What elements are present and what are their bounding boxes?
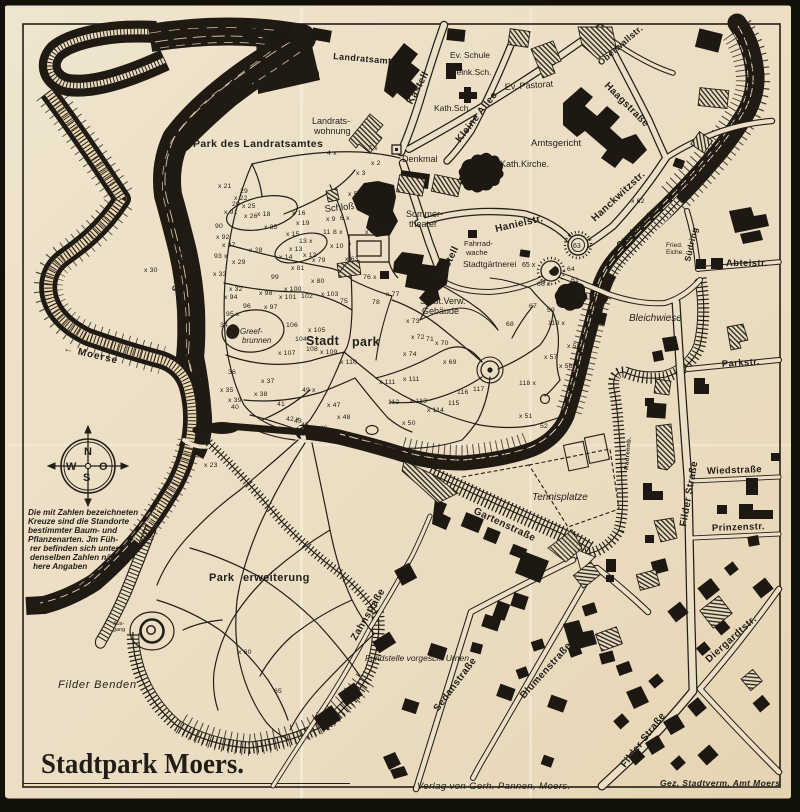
svg-text:Eiche.: Eiche. bbox=[666, 249, 684, 256]
svg-text:x 35: x 35 bbox=[220, 387, 234, 394]
svg-text:gang: gang bbox=[113, 627, 125, 633]
svg-text:Filder Benden: Filder Benden bbox=[58, 679, 137, 691]
svg-text:x 98: x 98 bbox=[259, 290, 273, 297]
svg-text:Denkmal: Denkmal bbox=[402, 154, 438, 164]
svg-text:49 x: 49 x bbox=[302, 387, 316, 394]
svg-text:8 x: 8 x bbox=[333, 229, 343, 236]
svg-text:76 x: 76 x bbox=[363, 274, 377, 281]
svg-text:x 74: x 74 bbox=[403, 351, 417, 358]
svg-text:x 91: x 91 bbox=[224, 209, 238, 216]
svg-text:59: 59 bbox=[547, 307, 555, 314]
svg-text:x 39: x 39 bbox=[228, 397, 242, 404]
svg-text:66 x: 66 x bbox=[537, 281, 551, 288]
svg-text:11: 11 bbox=[323, 229, 330, 236]
svg-text:Die mit Zahlen bezeichneten: Die mit Zahlen bezeichneten bbox=[28, 508, 138, 517]
svg-text:Stadt.Verw.: Stadt.Verw. bbox=[420, 296, 466, 306]
svg-text:N: N bbox=[84, 446, 92, 458]
svg-text:x 13: x 13 bbox=[289, 246, 303, 253]
svg-text:29: 29 bbox=[240, 188, 248, 195]
svg-text:Kath.Kirche.: Kath.Kirche. bbox=[500, 159, 549, 169]
svg-text:104: 104 bbox=[295, 336, 307, 343]
svg-text:bestimmter Baum- und: bestimmter Baum- und bbox=[28, 526, 118, 535]
svg-text:78: 78 bbox=[372, 299, 380, 306]
svg-text:71: 71 bbox=[426, 336, 434, 343]
svg-text:x 19: x 19 bbox=[296, 220, 310, 227]
svg-text:x 69: x 69 bbox=[443, 359, 457, 366]
svg-text:x 10: x 10 bbox=[330, 243, 344, 250]
svg-text:20: 20 bbox=[232, 201, 240, 208]
svg-text:112: 112 bbox=[388, 399, 399, 406]
svg-text:x 50: x 50 bbox=[402, 420, 416, 427]
svg-text:x 46: x 46 bbox=[314, 425, 328, 432]
svg-text:106: 106 bbox=[286, 322, 298, 329]
svg-text:119 x: 119 x bbox=[548, 320, 566, 327]
svg-text:x 16: x 16 bbox=[292, 210, 306, 217]
svg-text:95 x: 95 x bbox=[226, 311, 240, 318]
svg-text:Ev. Schule: Ev. Schule bbox=[450, 50, 490, 60]
svg-text:Tennisplatze: Tennisplatze bbox=[532, 492, 588, 503]
svg-text:x 30: x 30 bbox=[144, 267, 158, 274]
svg-text:x 37: x 37 bbox=[261, 378, 275, 385]
svg-text:wohnung: wohnung bbox=[313, 126, 351, 136]
svg-text:x 103: x 103 bbox=[321, 291, 339, 298]
svg-text:Kath.Sch.: Kath.Sch. bbox=[434, 103, 471, 113]
svg-text:x 2: x 2 bbox=[371, 160, 381, 167]
svg-text:67: 67 bbox=[529, 303, 537, 310]
svg-text:x 81: x 81 bbox=[291, 265, 305, 272]
svg-text:x 72: x 72 bbox=[411, 334, 425, 341]
svg-text:75: 75 bbox=[340, 298, 348, 305]
svg-text:x 79: x 79 bbox=[312, 257, 326, 264]
svg-text:x 60: x 60 bbox=[238, 649, 252, 656]
svg-text:x 55: x 55 bbox=[566, 386, 580, 393]
svg-text:theater: theater bbox=[409, 219, 437, 229]
svg-text:W: W bbox=[66, 461, 77, 473]
svg-text:68: 68 bbox=[506, 321, 514, 328]
svg-text:x 77: x 77 bbox=[386, 291, 400, 298]
svg-text:116: 116 bbox=[457, 389, 468, 396]
svg-text:x 22: x 22 bbox=[234, 195, 248, 202]
svg-text:erweiterung: erweiterung bbox=[243, 572, 310, 584]
svg-text:93 x: 93 x bbox=[214, 253, 228, 260]
svg-text:102: 102 bbox=[301, 293, 313, 300]
svg-text:x 29: x 29 bbox=[232, 259, 246, 266]
svg-text:Sommer-: Sommer- bbox=[406, 209, 443, 219]
svg-text:Greef-: Greef- bbox=[240, 327, 263, 336]
svg-text:Fundstelle vorgesch. Urnen: Fundstelle vorgesch. Urnen bbox=[365, 653, 469, 663]
svg-text:65: 65 bbox=[274, 688, 282, 695]
svg-text:Gebäude: Gebäude bbox=[422, 306, 459, 316]
svg-text:x 21: x 21 bbox=[218, 183, 232, 190]
svg-text:x 101: x 101 bbox=[279, 294, 297, 301]
svg-text:36: 36 bbox=[228, 369, 236, 376]
svg-text:x 105: x 105 bbox=[308, 327, 326, 334]
svg-text:x 40: x 40 bbox=[365, 229, 379, 236]
svg-text:x 111: x 111 bbox=[403, 376, 420, 383]
svg-text:x 107: x 107 bbox=[278, 350, 296, 357]
svg-text:x 23: x 23 bbox=[204, 462, 218, 469]
svg-text:Pflanzenarten. Jm Füh-: Pflanzenarten. Jm Füh- bbox=[28, 535, 118, 544]
svg-text:S: S bbox=[83, 472, 90, 484]
svg-text:x 62: x 62 bbox=[631, 198, 645, 205]
svg-text:Stadtpark Moers.: Stadtpark Moers. bbox=[41, 748, 244, 780]
svg-text:61: 61 bbox=[571, 277, 579, 284]
svg-text:rer befinden sich unter: rer befinden sich unter bbox=[30, 544, 120, 553]
svg-text:41: 41 bbox=[277, 401, 285, 408]
svg-text:Gez. Stadtverm. Amt Moers: Gez. Stadtverm. Amt Moers bbox=[660, 778, 780, 788]
svg-text:x 33: x 33 bbox=[213, 271, 227, 278]
svg-text:45: 45 bbox=[301, 422, 309, 429]
svg-text:x 51: x 51 bbox=[519, 413, 533, 420]
svg-text:Stadtgärtnerei: Stadtgärtnerei bbox=[463, 259, 517, 269]
svg-text:108: 108 bbox=[306, 346, 318, 353]
svg-text:x 48: x 48 bbox=[337, 414, 351, 421]
svg-text:x 114: x 114 bbox=[427, 407, 444, 414]
svg-text:x 97: x 97 bbox=[264, 304, 278, 311]
svg-text:117: 117 bbox=[473, 386, 484, 393]
svg-text:x 26: x 26 bbox=[244, 213, 258, 220]
svg-text:x 47: x 47 bbox=[327, 402, 341, 409]
svg-text:Fried.: Fried. bbox=[666, 242, 683, 249]
svg-text:54: 54 bbox=[565, 398, 573, 405]
svg-text:Verlag von Gerh. Pannen, Moers: Verlag von Gerh. Pannen, Moers. bbox=[417, 781, 571, 792]
svg-text:denselben Zahlen nä-: denselben Zahlen nä- bbox=[30, 553, 114, 562]
svg-text:x 73: x 73 bbox=[406, 318, 420, 325]
svg-text:65 x: 65 x bbox=[522, 262, 536, 269]
svg-text:x 25: x 25 bbox=[242, 203, 256, 210]
svg-text:Landrats-: Landrats- bbox=[312, 116, 350, 126]
svg-text:64: 64 bbox=[567, 266, 575, 273]
svg-text:x 32: x 32 bbox=[229, 286, 243, 293]
svg-text:x 28: x 28 bbox=[249, 247, 263, 254]
svg-text:Bleichwiese: Bleichwiese bbox=[629, 313, 682, 324]
svg-text:x 14: x 14 bbox=[279, 254, 293, 261]
svg-text:x 9: x 9 bbox=[326, 216, 336, 223]
svg-text:Wiedstraße: Wiedstraße bbox=[707, 464, 762, 477]
svg-text:Amtsgericht: Amtsgericht bbox=[531, 138, 582, 149]
svg-text:O: O bbox=[99, 461, 108, 473]
svg-text:Fahrrad-: Fahrrad- bbox=[464, 239, 493, 248]
svg-text:x 85: x 85 bbox=[264, 224, 278, 231]
svg-text:4 x: 4 x bbox=[327, 150, 337, 157]
svg-text:Park des Landratsamtes: Park des Landratsamtes bbox=[193, 138, 323, 150]
svg-text:x 57: x 57 bbox=[544, 354, 558, 361]
svg-text:x 100: x 100 bbox=[284, 286, 302, 293]
svg-text:118 x: 118 x bbox=[519, 380, 537, 387]
svg-text:x 5: x 5 bbox=[348, 191, 358, 198]
svg-text:x 58: x 58 bbox=[567, 343, 581, 350]
svg-text:60: 60 bbox=[577, 285, 585, 292]
svg-text:x 56: x 56 bbox=[559, 363, 573, 370]
svg-text:x 38: x 38 bbox=[254, 391, 268, 398]
svg-text:here Angaben: here Angaben bbox=[33, 562, 87, 571]
svg-text:90: 90 bbox=[215, 223, 223, 230]
svg-text:Abteistr.: Abteistr. bbox=[726, 258, 768, 269]
svg-text:6 x: 6 x bbox=[340, 215, 350, 222]
svg-text:53: 53 bbox=[562, 404, 570, 411]
svg-text:63: 63 bbox=[573, 243, 581, 250]
svg-text:brunnen: brunnen bbox=[242, 336, 272, 345]
svg-text:park: park bbox=[352, 335, 380, 349]
svg-text:Prinzenstr.: Prinzenstr. bbox=[712, 521, 765, 534]
svg-text:x 110: x 110 bbox=[340, 359, 357, 366]
svg-text:x 18: x 18 bbox=[257, 211, 271, 218]
svg-text:x 27: x 27 bbox=[222, 242, 236, 249]
svg-text:x 3: x 3 bbox=[356, 170, 366, 177]
svg-text:115: 115 bbox=[448, 400, 459, 407]
svg-text:x 109: x 109 bbox=[320, 349, 338, 356]
svg-text:34: 34 bbox=[220, 322, 228, 329]
svg-text:x 113: x 113 bbox=[410, 398, 427, 405]
svg-text:99: 99 bbox=[271, 274, 279, 281]
svg-text:x 92: x 92 bbox=[216, 234, 230, 241]
svg-text:Kleink.Sch.: Kleink.Sch. bbox=[449, 67, 492, 77]
svg-text:x 94: x 94 bbox=[224, 294, 238, 301]
svg-text:96: 96 bbox=[243, 303, 251, 310]
svg-text:x 63: x 63 bbox=[345, 256, 359, 263]
svg-text:13 x: 13 x bbox=[299, 238, 313, 245]
svg-text:52: 52 bbox=[540, 423, 548, 430]
svg-text:x 70: x 70 bbox=[435, 340, 449, 347]
svg-text:x 15: x 15 bbox=[286, 231, 300, 238]
svg-text:x 80: x 80 bbox=[311, 278, 325, 285]
svg-text:7 x: 7 x bbox=[368, 145, 378, 152]
svg-text:wache: wache bbox=[465, 248, 488, 257]
svg-text:x 111: x 111 bbox=[379, 379, 396, 386]
svg-text:Kreuze sind die Standorte: Kreuze sind die Standorte bbox=[28, 517, 129, 526]
svg-text:40: 40 bbox=[231, 404, 239, 411]
svg-text:Park: Park bbox=[209, 572, 235, 584]
